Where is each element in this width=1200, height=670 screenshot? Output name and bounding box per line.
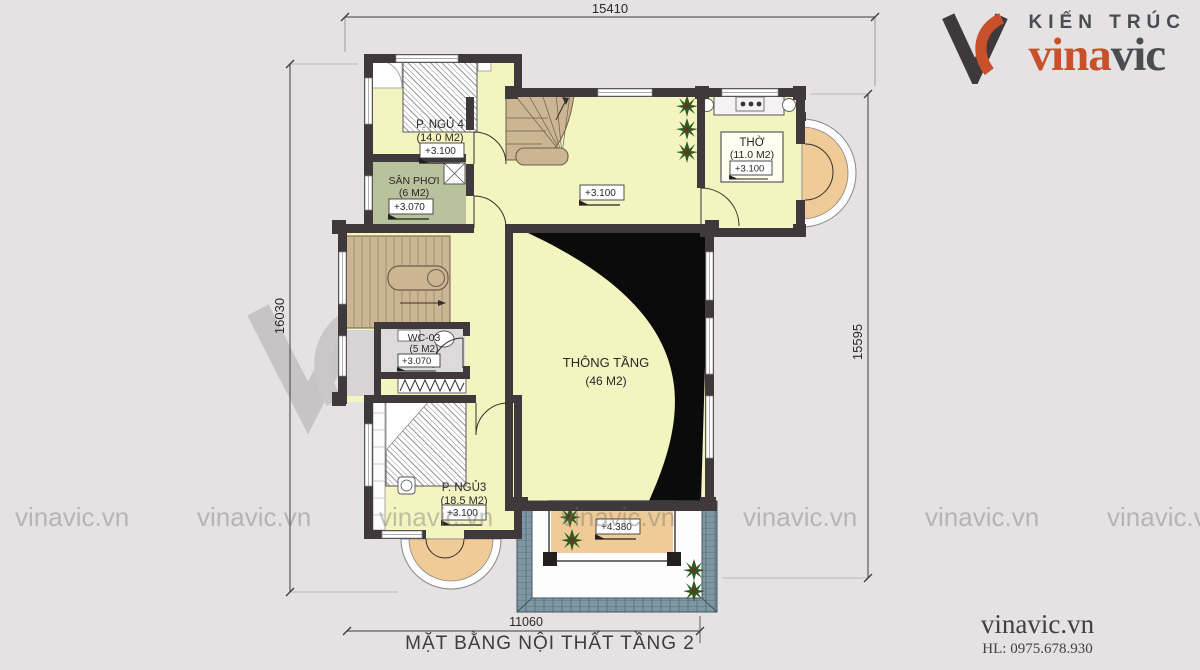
svg-text:+3.070: +3.070 [394, 202, 425, 213]
dimension-bottom-value: 11060 [509, 615, 543, 629]
footer-brand: vinavic.vn HL: 0975.678.930 [945, 609, 1130, 658]
balcony-right [802, 119, 856, 227]
room-sanphoi-area: (6 M2) [399, 187, 429, 199]
floor-plan-sheet: vinavic DESIGNER & BUILDING [0, 0, 1200, 670]
watermark-text: vinavic.vn [925, 502, 1039, 533]
watermark-text: vinavic.vn [197, 502, 311, 533]
room-thongtang-name: THÔNG TẦNG [563, 355, 649, 370]
watermark-text: vinavic.vn [1107, 502, 1200, 533]
room-wc-name: WC-03 [408, 332, 441, 344]
watermark-text: vinavic.vn [15, 502, 129, 533]
wc-lobby-floor [346, 330, 376, 396]
watermark-text: vinavic.vn [379, 502, 493, 533]
svg-text:+3.100: +3.100 [585, 188, 616, 199]
watermark-text: vinavic.vn [561, 502, 675, 533]
washing-box [444, 163, 465, 184]
watermark-text: vinavic.vn [743, 502, 857, 533]
room-sanphoi-name: SÂN PHƠI [388, 174, 439, 187]
balcony-bottom [401, 539, 501, 589]
dimension-top-value: 15410 [592, 1, 628, 16]
brand-name-rest: vic [1111, 29, 1165, 81]
footer-website: vinavic.vn [945, 609, 1130, 640]
room-bedroom3-name: P. NGỦ3 [442, 481, 487, 494]
room-tho-area: (11.0 M2) [730, 149, 774, 161]
svg-text:+3.100: +3.100 [735, 164, 764, 175]
main-staircase [346, 236, 450, 328]
room-tho-name: THỜ [739, 136, 764, 149]
bed-room3 [386, 400, 466, 494]
dimension-left-value: 16030 [272, 298, 287, 334]
sheet-title: MẶT BẰNG NỘI THẤT TẦNG 2 [330, 633, 770, 655]
hall-winder-stair [506, 94, 574, 165]
room-bedroom4-area: (14.0 M2) [416, 132, 463, 144]
dimension-right-value: 15595 [850, 324, 865, 360]
room-wc-area: (5 M2) [410, 344, 439, 355]
footer-hotline: HL: 0975.678.930 [945, 641, 1130, 658]
svg-text:+3.100: +3.100 [425, 146, 456, 157]
brand-name-accent: vina [1029, 29, 1111, 81]
brand-name: vinavic [1029, 34, 1186, 77]
room-bedroom4-name: P. NGỦ 4 [416, 118, 464, 131]
wardrobe-zigzag [398, 378, 466, 393]
brand-logo-icon [935, 8, 1021, 84]
svg-text:+3.070: +3.070 [402, 356, 431, 367]
room-thongtang-area: (46 M2) [585, 374, 626, 388]
altar-cabinet [701, 95, 796, 115]
brand-logo: KIẾN TRÚC vinavic [935, 8, 1186, 84]
floor-plan-drawing: vinavic DESIGNER & BUILDING [0, 0, 1200, 670]
